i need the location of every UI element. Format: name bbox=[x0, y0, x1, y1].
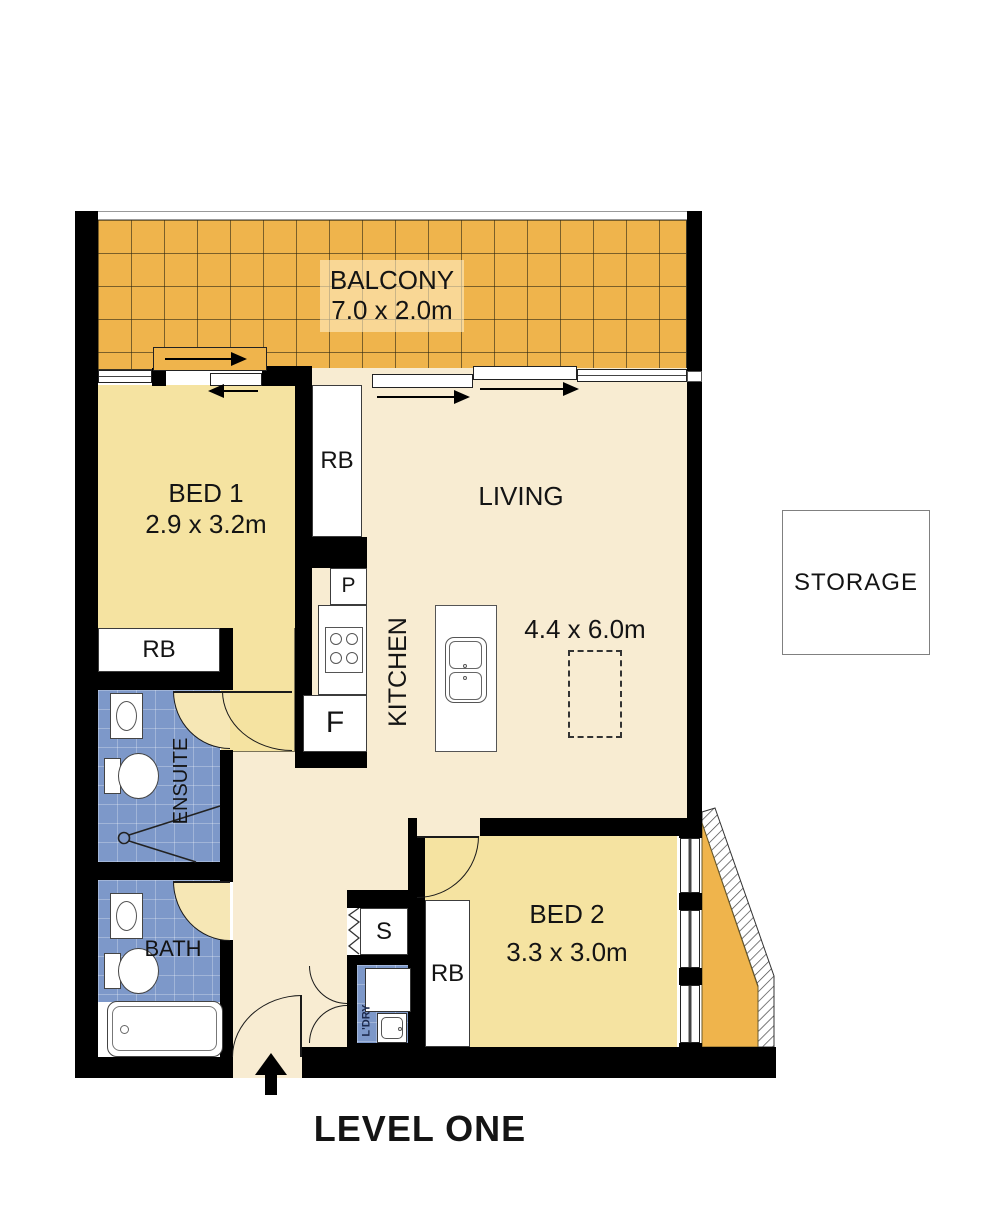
bed2-name: BED 2 bbox=[529, 900, 604, 930]
bed2-robe-label: RB bbox=[431, 960, 464, 988]
living-slider-panel-2 bbox=[473, 366, 577, 380]
dining-zone-outline bbox=[568, 650, 622, 738]
fridge-space: F bbox=[303, 695, 367, 752]
tap-icon bbox=[398, 1027, 402, 1031]
island-sink bbox=[445, 637, 487, 703]
entry-arrow-shaft bbox=[265, 1074, 277, 1095]
wall-laundry-left bbox=[347, 965, 357, 1043]
drain-icon bbox=[120, 1025, 129, 1034]
bed2-window-1 bbox=[680, 838, 700, 893]
store-cupboard: S bbox=[360, 908, 408, 955]
bed1-slider-arrow-out bbox=[165, 358, 245, 360]
kitchen-robe: RB bbox=[312, 385, 362, 537]
bifold-door-strip bbox=[347, 908, 360, 955]
bifold-zigzag-icon bbox=[347, 908, 360, 955]
wall-outer-left bbox=[75, 211, 98, 1078]
living-slider-arrow-2 bbox=[480, 388, 577, 390]
tap-icon bbox=[463, 676, 467, 680]
living-window bbox=[577, 369, 687, 382]
bed2-window-3 bbox=[680, 985, 700, 1043]
wall-bed2-window-sep-3 bbox=[679, 968, 702, 985]
burner-icon bbox=[346, 652, 358, 664]
wall-s-cupboard-top bbox=[347, 890, 425, 908]
storage-box: STORAGE bbox=[782, 510, 930, 655]
wall-laundry-bottom bbox=[347, 1043, 425, 1057]
wall-outer-bottom-left bbox=[75, 1057, 233, 1078]
bed2-dims: 3.3 x 3.0m bbox=[506, 938, 627, 968]
bath-name: BATH bbox=[144, 936, 201, 961]
balcony-name: BALCONY bbox=[330, 266, 454, 296]
burner-icon bbox=[346, 633, 358, 645]
right-wall-window-notch bbox=[687, 371, 702, 382]
pantry: P bbox=[330, 568, 367, 605]
balcony-label-group: BALCONY 7.0 x 2.0m bbox=[320, 260, 464, 332]
wall-below-bed1-robe bbox=[98, 672, 220, 690]
wall-bed2-window-sep-2 bbox=[679, 893, 702, 910]
basin-icon bbox=[116, 901, 137, 931]
bed1-dims: 2.9 x 3.2m bbox=[145, 510, 266, 540]
bathtub bbox=[107, 1001, 223, 1057]
wall-bed2-top bbox=[480, 818, 687, 836]
wall-bed2-window-sep-1 bbox=[679, 818, 702, 838]
burner-icon bbox=[330, 633, 342, 645]
storage-label: STORAGE bbox=[794, 569, 918, 597]
ensuite-vanity bbox=[110, 693, 143, 739]
bed2-window-2 bbox=[680, 910, 700, 968]
laundry-tub bbox=[377, 1013, 407, 1043]
burner-icon bbox=[330, 652, 342, 664]
living-dims: 4.4 x 6.0m bbox=[524, 615, 645, 645]
bed1-window bbox=[98, 370, 152, 383]
bath-vanity bbox=[110, 893, 143, 939]
ensuite-name: ENSUITE bbox=[168, 725, 194, 837]
tap-icon bbox=[463, 664, 467, 668]
bed1-slider-arrow-in bbox=[210, 390, 258, 392]
bed2-balcony-triangle bbox=[696, 806, 788, 1058]
plan-title: LEVEL ONE bbox=[314, 1108, 526, 1149]
wall-ensuite-bath-divider bbox=[98, 862, 220, 880]
wall-top-mid-chunk bbox=[262, 366, 312, 386]
store-cupboard-label: S bbox=[376, 918, 392, 946]
wall-kitchen-bottom bbox=[295, 752, 367, 768]
fridge-label: F bbox=[326, 706, 344, 741]
cooktop bbox=[325, 627, 363, 673]
wall-right-of-bed1-robe bbox=[220, 628, 233, 690]
living-slider-arrow-1 bbox=[377, 396, 468, 398]
wall-bed2-top-stub bbox=[408, 818, 417, 836]
balcony-rail bbox=[80, 211, 698, 220]
bed1-name: BED 1 bbox=[168, 479, 243, 509]
bed1-robe-label: RB bbox=[142, 636, 175, 664]
floor-plan: RB P F RB bbox=[0, 0, 981, 1225]
entry-arrow-head bbox=[255, 1053, 287, 1075]
wall-s-laundry-divider bbox=[347, 955, 425, 965]
living-name: LIVING bbox=[478, 482, 563, 512]
laundry-name: L'DRY bbox=[361, 991, 374, 1051]
wall-bed2-window-sep-4 bbox=[679, 1043, 702, 1057]
bed1-robe: RB bbox=[98, 628, 220, 672]
ensuite-toilet bbox=[104, 753, 160, 799]
balcony-dims: 7.0 x 2.0m bbox=[331, 296, 452, 326]
living-slider-panel-1 bbox=[372, 374, 473, 388]
bed2-robe: RB bbox=[425, 900, 470, 1047]
entry-arrow-icon bbox=[255, 1053, 287, 1095]
wall-outer-right bbox=[687, 211, 702, 836]
basin-icon bbox=[116, 701, 137, 731]
kitchen-name: KITCHEN bbox=[383, 612, 413, 732]
toilet-bowl-icon bbox=[118, 753, 159, 799]
wall-kitchen-mid bbox=[312, 537, 367, 568]
pantry-label: P bbox=[341, 574, 355, 598]
kitchen-robe-label: RB bbox=[320, 447, 353, 475]
